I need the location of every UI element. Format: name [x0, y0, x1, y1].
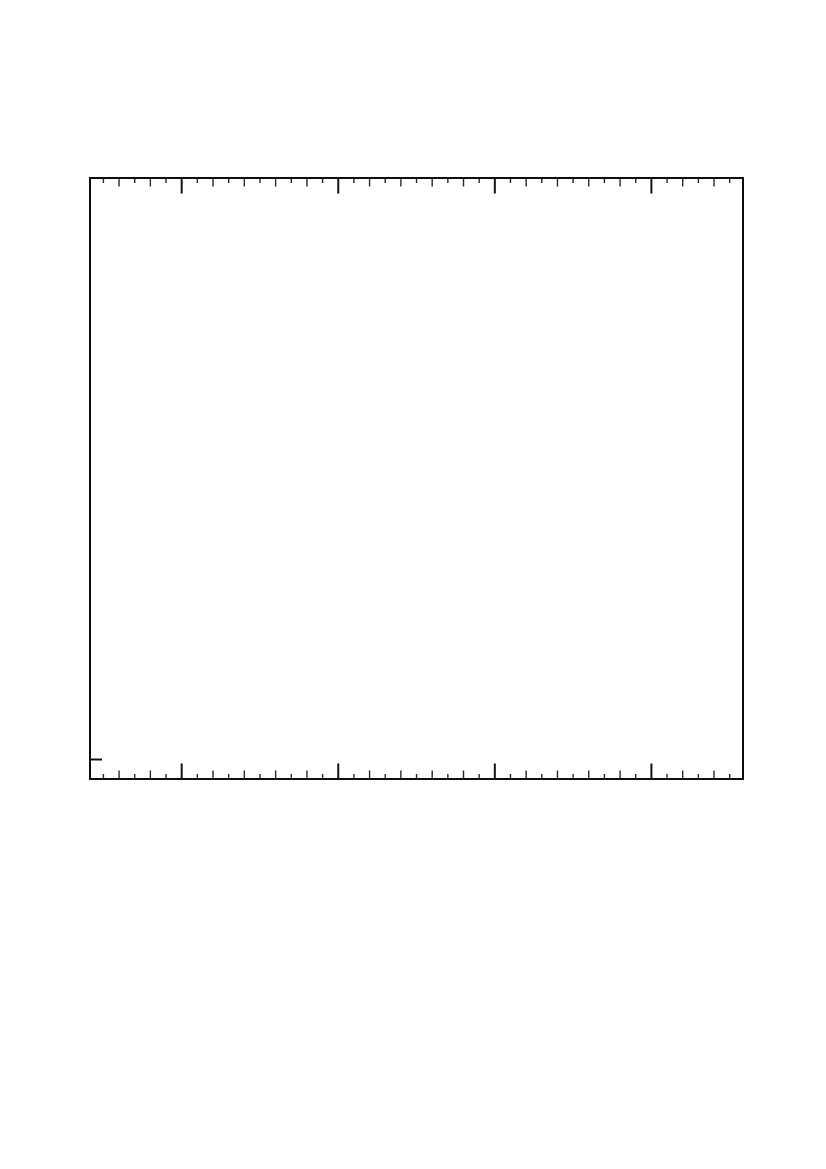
x-axis-bottom-ticks	[103, 764, 729, 779]
frame-border-group	[90, 178, 743, 779]
plot-frame-svg	[89, 177, 744, 780]
plot-frame	[89, 177, 744, 780]
frame-border	[90, 178, 743, 779]
x-axis-top-ticks	[103, 179, 729, 194]
canvas-page	[0, 0, 826, 1169]
